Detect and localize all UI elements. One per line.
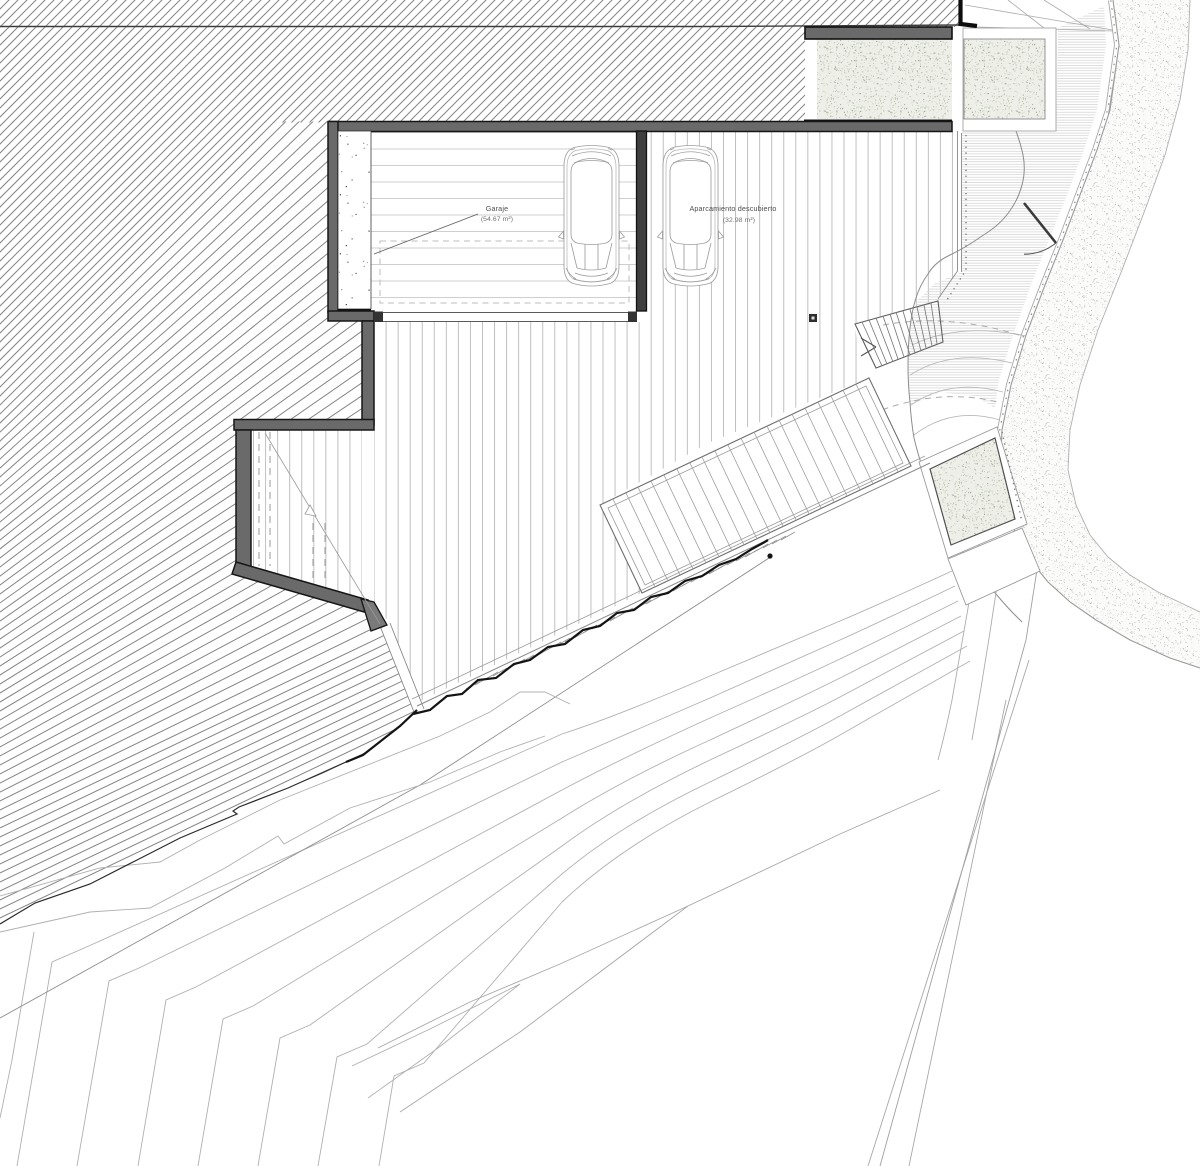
svg-text:Aparcamiento descubierto: Aparcamiento descubierto [689,204,776,213]
svg-text:(32.98 m²): (32.98 m²) [723,217,755,224]
svg-text:Garaje: Garaje [486,204,508,213]
svg-text:(54.67 m²): (54.67 m²) [481,216,513,223]
